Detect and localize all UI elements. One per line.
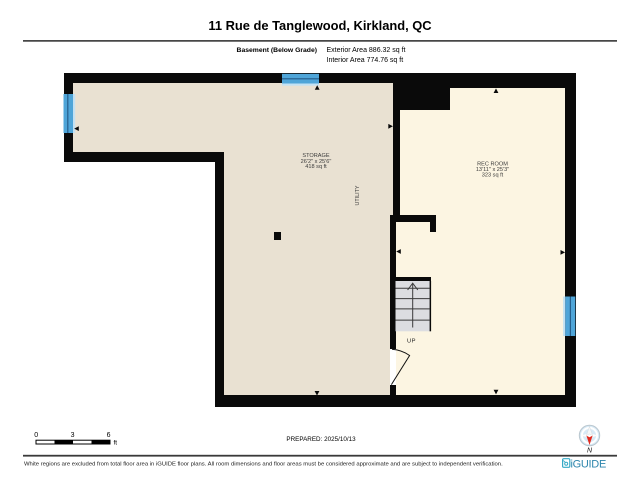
svg-text:418 sq ft: 418 sq ft: [305, 164, 327, 170]
svg-text:PREPARED: 2025/10/13: PREPARED: 2025/10/13: [286, 436, 356, 443]
svg-text:3: 3: [71, 432, 75, 439]
svg-text:UP: UP: [407, 339, 416, 345]
svg-text:0: 0: [34, 432, 38, 439]
svg-text:iGUIDE: iGUIDE: [571, 459, 606, 471]
svg-text:ft: ft: [114, 440, 118, 447]
svg-text:White regions are excluded fro: White regions are excluded from total fl…: [24, 461, 503, 467]
svg-text:11 Rue de Tanglewood, Kirkland: 11 Rue de Tanglewood, Kirkland, QC: [208, 18, 431, 33]
svg-text:UTILITY: UTILITY: [355, 185, 361, 205]
svg-text:6: 6: [107, 432, 111, 439]
svg-text:Interior Area 774.76 sq ft: Interior Area 774.76 sq ft: [327, 57, 404, 64]
svg-text:323 sq ft: 323 sq ft: [482, 173, 504, 179]
svg-text:Basement (Below Grade): Basement (Below Grade): [237, 47, 317, 54]
svg-text:Exterior Area 886.32 sq ft: Exterior Area 886.32 sq ft: [327, 47, 406, 54]
